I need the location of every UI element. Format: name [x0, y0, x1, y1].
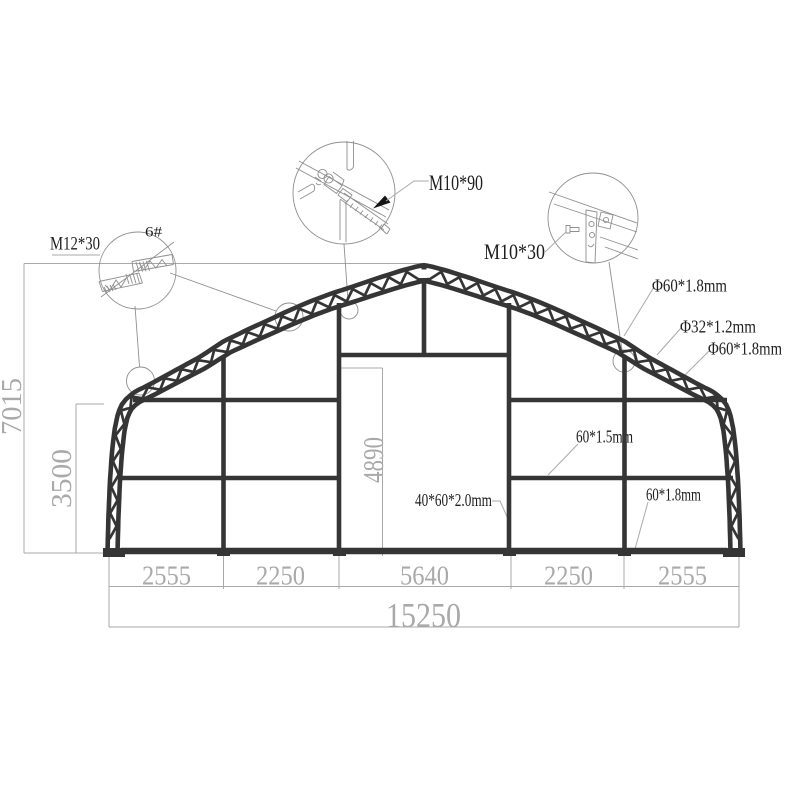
svg-text:Φ60*1.8mm: Φ60*1.8mm — [652, 276, 727, 296]
svg-text:5640: 5640 — [400, 561, 449, 591]
svg-text:M12*30: M12*30 — [50, 234, 100, 255]
svg-text:2555: 2555 — [142, 561, 191, 591]
svg-text:M10*30: M10*30 — [484, 239, 545, 264]
svg-text:6#: 6# — [145, 225, 163, 241]
svg-text:M10*90: M10*90 — [429, 170, 483, 195]
svg-text:2250: 2250 — [544, 561, 593, 591]
svg-text:7015: 7015 — [0, 378, 28, 435]
svg-text:3500: 3500 — [47, 449, 78, 508]
svg-text:40*60*2.0mm: 40*60*2.0mm — [415, 490, 492, 510]
svg-text:15250: 15250 — [386, 596, 461, 635]
svg-text:60*1.8mm: 60*1.8mm — [646, 485, 701, 505]
svg-text:Φ60*1.8mm: Φ60*1.8mm — [708, 339, 782, 359]
svg-text:2555: 2555 — [658, 561, 707, 591]
svg-text:Φ32*1.2mm: Φ32*1.2mm — [680, 317, 756, 337]
svg-text:2250: 2250 — [256, 561, 305, 591]
svg-text:4890: 4890 — [359, 437, 390, 483]
